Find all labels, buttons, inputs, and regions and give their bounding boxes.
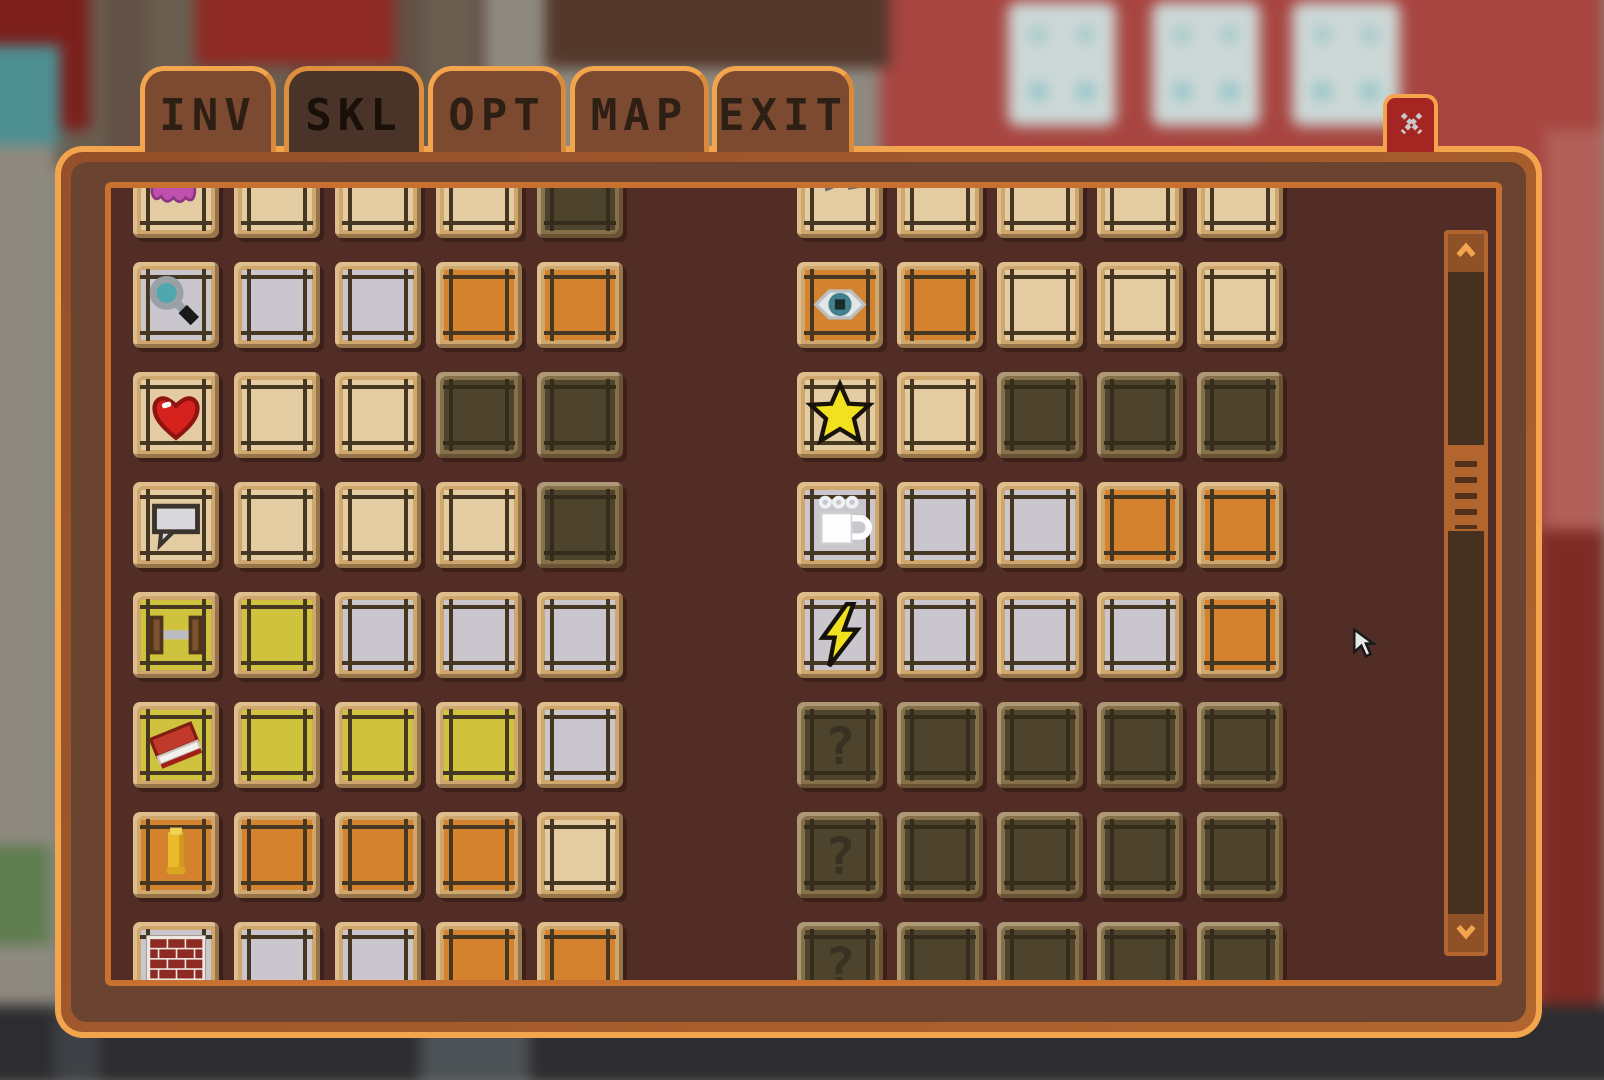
skill-level-slot[interactable]	[537, 262, 623, 348]
skill-level-slot[interactable]	[997, 592, 1083, 678]
slot-frame-line	[404, 709, 408, 781]
slot-frame-line	[1266, 188, 1270, 231]
slot-frame-line	[910, 489, 914, 561]
slot-frame-line	[1110, 269, 1114, 341]
slot-fill	[545, 820, 615, 890]
brick-wall-icon	[133, 922, 219, 980]
skill-level-slot[interactable]	[335, 372, 421, 458]
scroll-up-icon	[1453, 241, 1479, 265]
heart-icon	[133, 372, 219, 458]
slot-frame-line	[1210, 709, 1214, 781]
slot-fill	[1205, 710, 1275, 780]
skill-level-slot[interactable]	[997, 812, 1083, 898]
slot-frame-line	[1166, 819, 1170, 891]
slot-frame-line	[1110, 379, 1114, 451]
slot-frame-line	[966, 599, 970, 671]
skill-level-slot[interactable]	[997, 482, 1083, 568]
slot-frame-line	[404, 269, 408, 341]
backdrop-window	[1008, 2, 1116, 126]
slot-frame-line	[1110, 709, 1114, 781]
backdrop-shape	[545, 0, 890, 68]
skill-level-slot[interactable]	[436, 482, 522, 568]
slot-frame-line	[348, 269, 352, 341]
skills-panel-interior: ???	[111, 188, 1496, 980]
slot-fill	[242, 710, 312, 780]
tab-inv[interactable]: INV	[140, 66, 276, 152]
skill-level-slot[interactable]	[436, 592, 522, 678]
slot-fill	[905, 270, 975, 340]
slot-frame-line	[348, 819, 352, 891]
skill-level-slot[interactable]	[897, 922, 983, 980]
slot-fill	[343, 270, 413, 340]
slot-fill	[905, 710, 975, 780]
backdrop-window	[1152, 2, 1260, 126]
question-mark-skill-slot[interactable]: ?	[797, 702, 883, 788]
slot-frame-line	[505, 489, 509, 561]
skill-level-slot[interactable]	[897, 592, 983, 678]
slot-fill	[444, 820, 514, 890]
backdrop-shape	[1545, 130, 1604, 530]
slot-fill	[1105, 490, 1175, 560]
slot-fill	[545, 490, 615, 560]
slot-fill	[444, 710, 514, 780]
slot-frame-line	[1210, 269, 1214, 341]
scrollbar[interactable]	[1444, 230, 1488, 956]
magnifier-skill-slot[interactable]	[133, 262, 219, 348]
slot-frame-line	[1210, 819, 1214, 891]
book-skill-slot[interactable]	[133, 702, 219, 788]
slot-frame-line	[247, 379, 251, 451]
slot-frame-line	[505, 188, 509, 231]
star-icon	[797, 372, 883, 458]
skill-level-slot[interactable]	[436, 188, 522, 238]
slot-fill	[1205, 600, 1275, 670]
magnifier-icon	[133, 262, 219, 348]
question-mark-icon: ?	[797, 812, 883, 898]
slot-frame-line	[1166, 188, 1170, 231]
coffee-mug-skill-slot[interactable]	[797, 482, 883, 568]
slot-frame-line	[966, 489, 970, 561]
svg-text:?: ?	[825, 938, 856, 980]
slot-frame-line	[505, 379, 509, 451]
slot-frame-line	[1010, 709, 1014, 781]
skill-level-slot[interactable]	[436, 922, 522, 980]
slot-frame-line	[449, 269, 453, 341]
slot-fill	[444, 380, 514, 450]
slot-fill	[1105, 710, 1175, 780]
slot-frame-line	[606, 269, 610, 341]
skill-level-slot[interactable]	[335, 702, 421, 788]
slot-fill	[1205, 380, 1275, 450]
scroll-down-button[interactable]	[1448, 914, 1484, 952]
skill-level-slot[interactable]	[1197, 592, 1283, 678]
slot-fill	[1105, 600, 1175, 670]
slot-frame-line	[303, 599, 307, 671]
slot-frame-line	[303, 489, 307, 561]
coffee-mug-icon	[797, 482, 883, 568]
slot-frame-line	[404, 819, 408, 891]
slot-frame-line	[550, 188, 554, 231]
slot-frame-line	[1166, 929, 1170, 980]
slot-frame-line	[348, 599, 352, 671]
dumbbell-skill-slot[interactable]	[133, 592, 219, 678]
brick-wall-skill-slot[interactable]	[133, 922, 219, 980]
close-x-icon	[1394, 106, 1428, 144]
slot-frame-line	[1010, 379, 1014, 451]
slot-fill	[905, 380, 975, 450]
slot-frame-line	[550, 929, 554, 980]
skill-level-slot[interactable]	[234, 592, 320, 678]
skill-level-slot[interactable]	[1097, 188, 1183, 238]
tools-icon	[797, 188, 883, 238]
slot-frame-line	[404, 489, 408, 561]
skill-level-slot[interactable]	[897, 188, 983, 238]
slot-frame-line	[1066, 929, 1070, 980]
book-icon	[133, 702, 219, 788]
skill-level-slot[interactable]	[537, 922, 623, 980]
slot-frame-line	[303, 379, 307, 451]
slot-frame-line	[1110, 188, 1114, 231]
slot-fill	[905, 820, 975, 890]
slot-fill	[444, 600, 514, 670]
slot-frame-line	[1066, 489, 1070, 561]
slot-fill	[343, 600, 413, 670]
skill-level-slot[interactable]	[537, 592, 623, 678]
slot-frame-line	[606, 188, 610, 231]
slot-frame-line	[303, 929, 307, 980]
slot-frame-line	[247, 599, 251, 671]
slot-frame-line	[1066, 269, 1070, 341]
slot-fill	[242, 820, 312, 890]
skill-level-slot[interactable]	[537, 812, 623, 898]
dumbbell-icon	[133, 592, 219, 678]
slot-frame-line	[1110, 929, 1114, 980]
skill-level-slot[interactable]	[1097, 702, 1183, 788]
slot-frame-line	[910, 379, 914, 451]
slot-frame-line	[966, 819, 970, 891]
skill-level-slot[interactable]	[436, 372, 522, 458]
skill-level-slot[interactable]	[1097, 812, 1183, 898]
slot-frame-line	[449, 709, 453, 781]
scroll-up-button[interactable]	[1448, 234, 1484, 272]
star-skill-slot[interactable]	[797, 372, 883, 458]
slot-frame-line	[550, 819, 554, 891]
skill-level-slot[interactable]	[234, 262, 320, 348]
slot-frame-line	[303, 709, 307, 781]
slot-frame-line	[1010, 929, 1014, 980]
skill-level-slot[interactable]	[1197, 262, 1283, 348]
slot-frame-line	[404, 929, 408, 980]
skill-level-slot[interactable]	[997, 262, 1083, 348]
svg-text:?: ?	[825, 718, 856, 777]
slot-fill	[444, 270, 514, 340]
slot-frame-line	[1166, 709, 1170, 781]
slot-fill	[1205, 820, 1275, 890]
slot-frame-line	[1010, 188, 1014, 231]
slot-frame-line	[606, 929, 610, 980]
slot-frame-line	[348, 379, 352, 451]
slot-frame-line	[606, 819, 610, 891]
skill-level-slot[interactable]	[897, 702, 983, 788]
speech-bubble-skill-slot[interactable]	[133, 482, 219, 568]
slot-fill	[545, 710, 615, 780]
skill-level-slot[interactable]	[1097, 262, 1183, 348]
slot-frame-line	[505, 709, 509, 781]
brain-skill-slot[interactable]	[133, 188, 219, 238]
slot-frame-line	[247, 819, 251, 891]
slot-frame-line	[966, 269, 970, 341]
svg-text:?: ?	[825, 828, 856, 887]
lightning-icon	[797, 592, 883, 678]
slot-fill	[545, 600, 615, 670]
skill-level-slot[interactable]	[1197, 372, 1283, 458]
slot-frame-line	[1110, 819, 1114, 891]
slot-frame-line	[1066, 188, 1070, 231]
bullet-icon	[133, 812, 219, 898]
skill-level-slot[interactable]	[897, 262, 983, 348]
slot-fill	[343, 490, 413, 560]
slot-frame-line	[404, 188, 408, 231]
slot-frame-line	[1066, 819, 1070, 891]
slot-frame-line	[404, 379, 408, 451]
tools-skill-slot[interactable]	[797, 188, 883, 238]
slot-frame-line	[1166, 379, 1170, 451]
backdrop-shape	[0, 45, 60, 145]
scrollbar-thumb[interactable]	[1448, 445, 1484, 531]
question-mark-skill-slot[interactable]: ?	[797, 922, 883, 980]
slot-frame-line	[1266, 709, 1270, 781]
question-mark-skill-slot[interactable]: ?	[797, 812, 883, 898]
slot-frame-line	[966, 379, 970, 451]
slot-frame-line	[1166, 489, 1170, 561]
slot-frame-line	[966, 929, 970, 980]
slot-fill	[343, 710, 413, 780]
skill-level-slot[interactable]	[997, 188, 1083, 238]
slot-frame-line	[449, 489, 453, 561]
skill-level-slot[interactable]	[897, 482, 983, 568]
tab-exit[interactable]: EXIT	[712, 66, 854, 152]
slot-fill	[242, 490, 312, 560]
slot-frame-line	[348, 489, 352, 561]
slot-frame-line	[449, 188, 453, 231]
eye-skill-slot[interactable]	[797, 262, 883, 348]
slot-frame-line	[1066, 379, 1070, 451]
slot-fill	[1205, 490, 1275, 560]
slot-fill	[444, 490, 514, 560]
slot-frame-line	[1110, 489, 1114, 561]
backdrop-shape	[1540, 530, 1604, 1010]
skill-level-slot[interactable]	[1097, 482, 1183, 568]
slot-frame-line	[1166, 269, 1170, 341]
slot-frame-line	[348, 929, 352, 980]
heart-skill-slot[interactable]	[133, 372, 219, 458]
slot-frame-line	[247, 929, 251, 980]
tab-skl[interactable]: SKL	[284, 66, 424, 152]
skill-level-slot[interactable]	[436, 702, 522, 788]
skill-level-slot[interactable]	[1097, 372, 1183, 458]
slot-frame-line	[550, 599, 554, 671]
skill-level-slot[interactable]	[234, 812, 320, 898]
tab-map[interactable]: MAP	[570, 66, 709, 152]
slot-frame-line	[966, 188, 970, 231]
slot-frame-line	[1210, 929, 1214, 980]
slot-frame-line	[1266, 819, 1270, 891]
slot-frame-line	[550, 489, 554, 561]
slot-frame-line	[966, 709, 970, 781]
slot-frame-line	[910, 819, 914, 891]
slot-frame-line	[303, 819, 307, 891]
lightning-skill-slot[interactable]	[797, 592, 883, 678]
slot-frame-line	[348, 188, 352, 231]
slot-frame-line	[1010, 599, 1014, 671]
slot-frame-line	[910, 929, 914, 980]
skill-level-slot[interactable]	[335, 482, 421, 568]
slot-fill	[545, 380, 615, 450]
skill-level-slot[interactable]	[234, 188, 320, 238]
skill-level-slot[interactable]	[537, 372, 623, 458]
skill-level-slot[interactable]	[537, 702, 623, 788]
backdrop-shape	[195, 0, 395, 65]
scroll-down-icon	[1453, 921, 1479, 945]
slot-fill	[1205, 270, 1275, 340]
tab-opt[interactable]: OPT	[428, 66, 566, 152]
slot-fill	[1105, 820, 1175, 890]
slot-frame-line	[1110, 599, 1114, 671]
skill-level-slot[interactable]	[335, 922, 421, 980]
slot-fill	[1005, 490, 1075, 560]
slot-frame-line	[505, 929, 509, 980]
slot-frame-line	[1010, 819, 1014, 891]
slot-frame-line	[1010, 489, 1014, 561]
slot-frame-line	[505, 819, 509, 891]
skill-level-slot[interactable]	[436, 262, 522, 348]
slot-fill	[1105, 380, 1175, 450]
skill-level-slot[interactable]	[335, 188, 421, 238]
slot-frame-line	[1066, 709, 1070, 781]
eye-icon	[797, 262, 883, 348]
slot-frame-line	[449, 599, 453, 671]
skill-level-slot[interactable]	[997, 702, 1083, 788]
brain-icon	[133, 188, 219, 238]
slot-frame-line	[1266, 379, 1270, 451]
skill-level-slot[interactable]	[997, 922, 1083, 980]
question-mark-icon: ?	[797, 922, 883, 980]
skill-level-slot[interactable]	[1097, 922, 1183, 980]
slot-frame-line	[1266, 599, 1270, 671]
slot-frame-line	[505, 269, 509, 341]
slot-frame-line	[247, 188, 251, 231]
slot-frame-line	[303, 188, 307, 231]
skill-level-slot[interactable]	[436, 812, 522, 898]
slot-frame-line	[1266, 929, 1270, 980]
slot-frame-line	[606, 379, 610, 451]
slot-frame-line	[606, 489, 610, 561]
slot-fill	[343, 380, 413, 450]
skill-level-slot[interactable]	[1197, 812, 1283, 898]
skill-level-slot[interactable]	[997, 372, 1083, 458]
slot-frame-line	[247, 269, 251, 341]
slot-frame-line	[1210, 599, 1214, 671]
slot-frame-line	[910, 599, 914, 671]
slot-frame-line	[550, 379, 554, 451]
slot-frame-line	[550, 709, 554, 781]
backdrop-shape	[0, 845, 50, 945]
slot-frame-line	[1266, 269, 1270, 341]
skill-level-slot[interactable]	[1097, 592, 1183, 678]
game-screen: INVSKLOPTMAPEXIT ???	[0, 0, 1604, 1080]
slot-frame-line	[247, 489, 251, 561]
slot-frame-line	[449, 819, 453, 891]
slot-frame-line	[1210, 379, 1214, 451]
slot-fill	[905, 600, 975, 670]
slot-frame-line	[606, 709, 610, 781]
skill-level-slot[interactable]	[897, 812, 983, 898]
skill-level-slot[interactable]	[234, 702, 320, 788]
skill-level-slot[interactable]	[335, 262, 421, 348]
skill-level-slot[interactable]	[1197, 922, 1283, 980]
skill-level-slot[interactable]	[234, 482, 320, 568]
slot-fill	[1005, 710, 1075, 780]
slot-fill	[905, 490, 975, 560]
slot-frame-line	[303, 269, 307, 341]
slot-frame-line	[606, 599, 610, 671]
skill-level-slot[interactable]	[234, 922, 320, 980]
slot-frame-line	[1210, 489, 1214, 561]
speech-bubble-icon	[133, 482, 219, 568]
skill-level-slot[interactable]	[537, 188, 623, 238]
slot-fill	[242, 380, 312, 450]
skill-level-slot[interactable]	[537, 482, 623, 568]
slot-fill	[545, 270, 615, 340]
slot-fill	[242, 600, 312, 670]
skill-level-slot[interactable]	[335, 592, 421, 678]
slot-frame-line	[348, 709, 352, 781]
skill-level-slot[interactable]	[897, 372, 983, 458]
slot-frame-line	[1210, 188, 1214, 231]
slot-frame-line	[505, 599, 509, 671]
slot-frame-line	[910, 709, 914, 781]
skill-level-slot[interactable]	[1197, 482, 1283, 568]
slot-frame-line	[1066, 599, 1070, 671]
slot-fill	[1105, 270, 1175, 340]
slot-frame-line	[247, 709, 251, 781]
slot-fill	[1005, 820, 1075, 890]
skill-level-slot[interactable]	[234, 372, 320, 458]
slot-frame-line	[449, 929, 453, 980]
slot-frame-line	[910, 269, 914, 341]
slot-frame-line	[1166, 599, 1170, 671]
bullet-skill-slot[interactable]	[133, 812, 219, 898]
slot-frame-line	[550, 269, 554, 341]
slot-frame-line	[910, 188, 914, 231]
skills-panel: ???	[55, 146, 1542, 1038]
skill-level-slot[interactable]	[335, 812, 421, 898]
slot-fill	[343, 820, 413, 890]
slot-frame-line	[404, 599, 408, 671]
slot-frame-line	[1266, 489, 1270, 561]
slot-frame-line	[449, 379, 453, 451]
slot-frame-line	[1010, 269, 1014, 341]
slot-fill	[1005, 270, 1075, 340]
slot-fill	[242, 270, 312, 340]
skill-level-slot[interactable]	[1197, 188, 1283, 238]
skill-level-slot[interactable]	[1197, 702, 1283, 788]
question-mark-icon: ?	[797, 702, 883, 788]
slot-fill	[1005, 600, 1075, 670]
slot-fill	[1005, 380, 1075, 450]
close-button[interactable]	[1383, 94, 1438, 152]
